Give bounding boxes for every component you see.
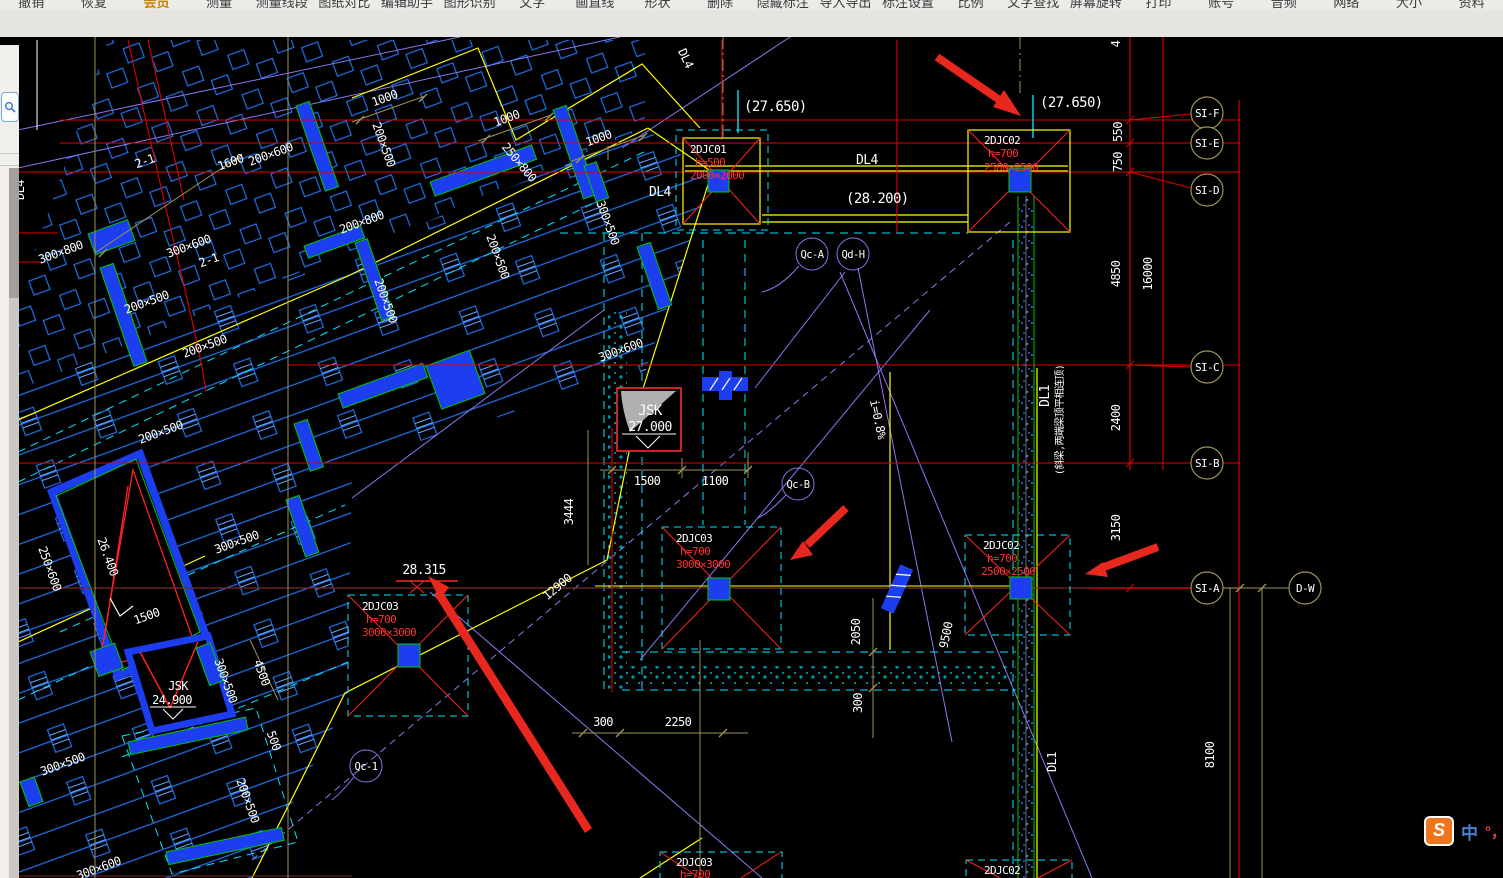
jsk-b-name: JSK xyxy=(168,679,189,693)
cap-size: 3000×3000 xyxy=(362,626,416,639)
menu-account[interactable]: 账号 xyxy=(1190,0,1253,2)
dim-550: 550 xyxy=(1111,122,1125,142)
mark-qca: Qc-A xyxy=(801,249,825,261)
ime-mode-chinese[interactable]: 中 xyxy=(1461,819,1478,844)
cap-height: h=700 xyxy=(988,147,1018,160)
sidebar-divider xyxy=(0,153,19,154)
menu-import-export[interactable]: 导入导出 xyxy=(814,0,877,2)
axis-label-b: SI-B xyxy=(1195,457,1220,470)
beam-dl4-left: DL4 xyxy=(649,185,671,200)
menu-draw-line[interactable]: 画直线 xyxy=(564,0,627,2)
menu-compare[interactable]: 图纸对比 xyxy=(313,0,376,2)
menu-measure-line[interactable]: 测量线段 xyxy=(251,0,314,2)
mark-qc1: Qc-1 xyxy=(355,761,378,773)
menu-network[interactable]: 网络 xyxy=(1315,0,1378,2)
dim-1500: 1500 xyxy=(634,474,661,488)
svg-text:28.315: 28.315 xyxy=(402,563,445,578)
menu-size[interactable]: 大小 xyxy=(1378,0,1441,2)
beam-dl4: DL4 xyxy=(856,153,878,168)
level-top-center: (27.650) xyxy=(744,99,807,115)
menu-screen-rotate[interactable]: 屏幕旋转 xyxy=(1065,0,1128,2)
jsk-a-name: JSK xyxy=(638,403,663,419)
cap-name: 2DJC01 xyxy=(690,143,726,156)
menu-print[interactable]: 打印 xyxy=(1127,0,1190,2)
axis-label-f: SI-F xyxy=(1195,107,1219,120)
menu-shape-recognize[interactable]: 图形识别 xyxy=(438,0,501,2)
axis-label-dw: D-W xyxy=(1296,582,1315,595)
dim-16000: 16000 xyxy=(1141,257,1155,290)
dim-750: 750 xyxy=(1111,152,1125,172)
menu-resource[interactable]: 资料 xyxy=(1440,0,1503,2)
tab-bar xyxy=(0,10,1503,37)
cap-height: h=700 xyxy=(987,552,1017,565)
cap-size: 2500×2500 xyxy=(981,565,1035,578)
basement-wall-strip xyxy=(1018,196,1034,878)
dim-4850: 4850 xyxy=(1109,260,1123,287)
jsk-b-elevation: 24.900 xyxy=(152,693,192,707)
menu-shape[interactable]: 形状 xyxy=(626,0,689,2)
axis-label-d: SI-D xyxy=(1195,184,1219,197)
dim-2250: 2250 xyxy=(665,715,692,729)
axis-label-c: SI-C xyxy=(1195,361,1219,374)
axis-label-a: SI-A xyxy=(1195,582,1220,595)
dim-1100: 1100 xyxy=(702,474,729,488)
menu-delete[interactable]: 删除 xyxy=(689,0,752,2)
cap-height: h=700 xyxy=(680,545,710,558)
beam-dl1-note: (斜梁,两端梁顶平相连顶) xyxy=(1053,365,1066,475)
cap-name: 2DJC03 xyxy=(362,600,398,613)
menu-undo[interactable]: 撤销 xyxy=(0,0,63,2)
ime-punctuation[interactable]: °， xyxy=(1485,821,1503,842)
cap-size: 3000×3000 xyxy=(676,558,730,571)
search-icon xyxy=(4,101,16,113)
menu-measure[interactable]: 测量 xyxy=(188,0,251,2)
ime-toolbar[interactable]: S 中 °， xyxy=(1424,816,1503,846)
beam-dl1: DL1 xyxy=(1038,385,1053,407)
level-top-right: (27.650) xyxy=(1040,95,1103,111)
dim-300b: 300 xyxy=(851,693,865,713)
menu-redo[interactable]: 恢复 xyxy=(63,0,126,2)
cap-name: 2DJC02 xyxy=(984,134,1020,147)
dim-3444: 3444 xyxy=(562,498,576,525)
cap-size: 2000×2000 xyxy=(690,169,744,182)
jsk-marker-27000: JSK 27.000 xyxy=(617,388,681,451)
dim-2400: 2400 xyxy=(1109,404,1123,431)
dim-3150: 3150 xyxy=(1109,514,1123,541)
menu-edit-helper[interactable]: 编辑助手 xyxy=(376,0,439,2)
scrollbar-thumb[interactable] xyxy=(9,168,19,298)
application-window: 撤销 恢复 会员 测量 测量线段 图纸对比 编辑助手 图形识别 文字 画直线 形… xyxy=(0,0,1503,878)
menu-text-search[interactable]: 文字查找 xyxy=(1002,0,1065,2)
dim-8100: 8100 xyxy=(1203,741,1217,768)
cap-height: h=500 xyxy=(695,156,725,169)
sogou-logo-icon[interactable]: S xyxy=(1424,816,1454,846)
cap-name: 2DJC02 xyxy=(984,864,1020,877)
cap-height: h=700 xyxy=(366,613,396,626)
mark-qcb: Qc-B xyxy=(787,479,810,491)
cap-name: 2DJC02 xyxy=(983,539,1019,552)
jsk-a-elevation: 27.000 xyxy=(628,420,671,435)
level-mid: (28.200) xyxy=(846,191,909,207)
drawing-canvas[interactable]: JSK 24.900 xyxy=(19,37,1503,878)
menu-hide-annotation[interactable]: 隐藏标注 xyxy=(752,0,815,2)
dim-2050: 2050 xyxy=(849,618,863,645)
dim-partial: 4 xyxy=(1109,40,1123,47)
cap-name: 2DJC03 xyxy=(676,532,712,545)
menu-text[interactable]: 文字 xyxy=(501,0,564,2)
cap-size: 2500×2500 xyxy=(984,161,1038,174)
bldg-label: DL4 xyxy=(19,180,27,200)
left-sidebar xyxy=(0,45,19,878)
beam-dl1-bottom: DL1 xyxy=(1045,752,1059,772)
dim-300a: 300 xyxy=(593,715,613,729)
menu-scale[interactable]: 比例 xyxy=(939,0,1002,2)
sidebar-divider xyxy=(0,165,19,166)
axis-label-e: SI-E xyxy=(1195,137,1219,150)
zoom-search-button[interactable] xyxy=(1,92,19,122)
mark-qdh: Qd-H xyxy=(842,249,865,261)
sidebar-scrollbar[interactable] xyxy=(9,168,19,878)
menu-vip[interactable]: 会员 xyxy=(125,0,188,2)
menu-annotation-settings[interactable]: 标注设置 xyxy=(877,0,940,2)
menu-audio[interactable]: 音频 xyxy=(1253,0,1316,2)
cap-height: h=700 xyxy=(680,868,710,878)
